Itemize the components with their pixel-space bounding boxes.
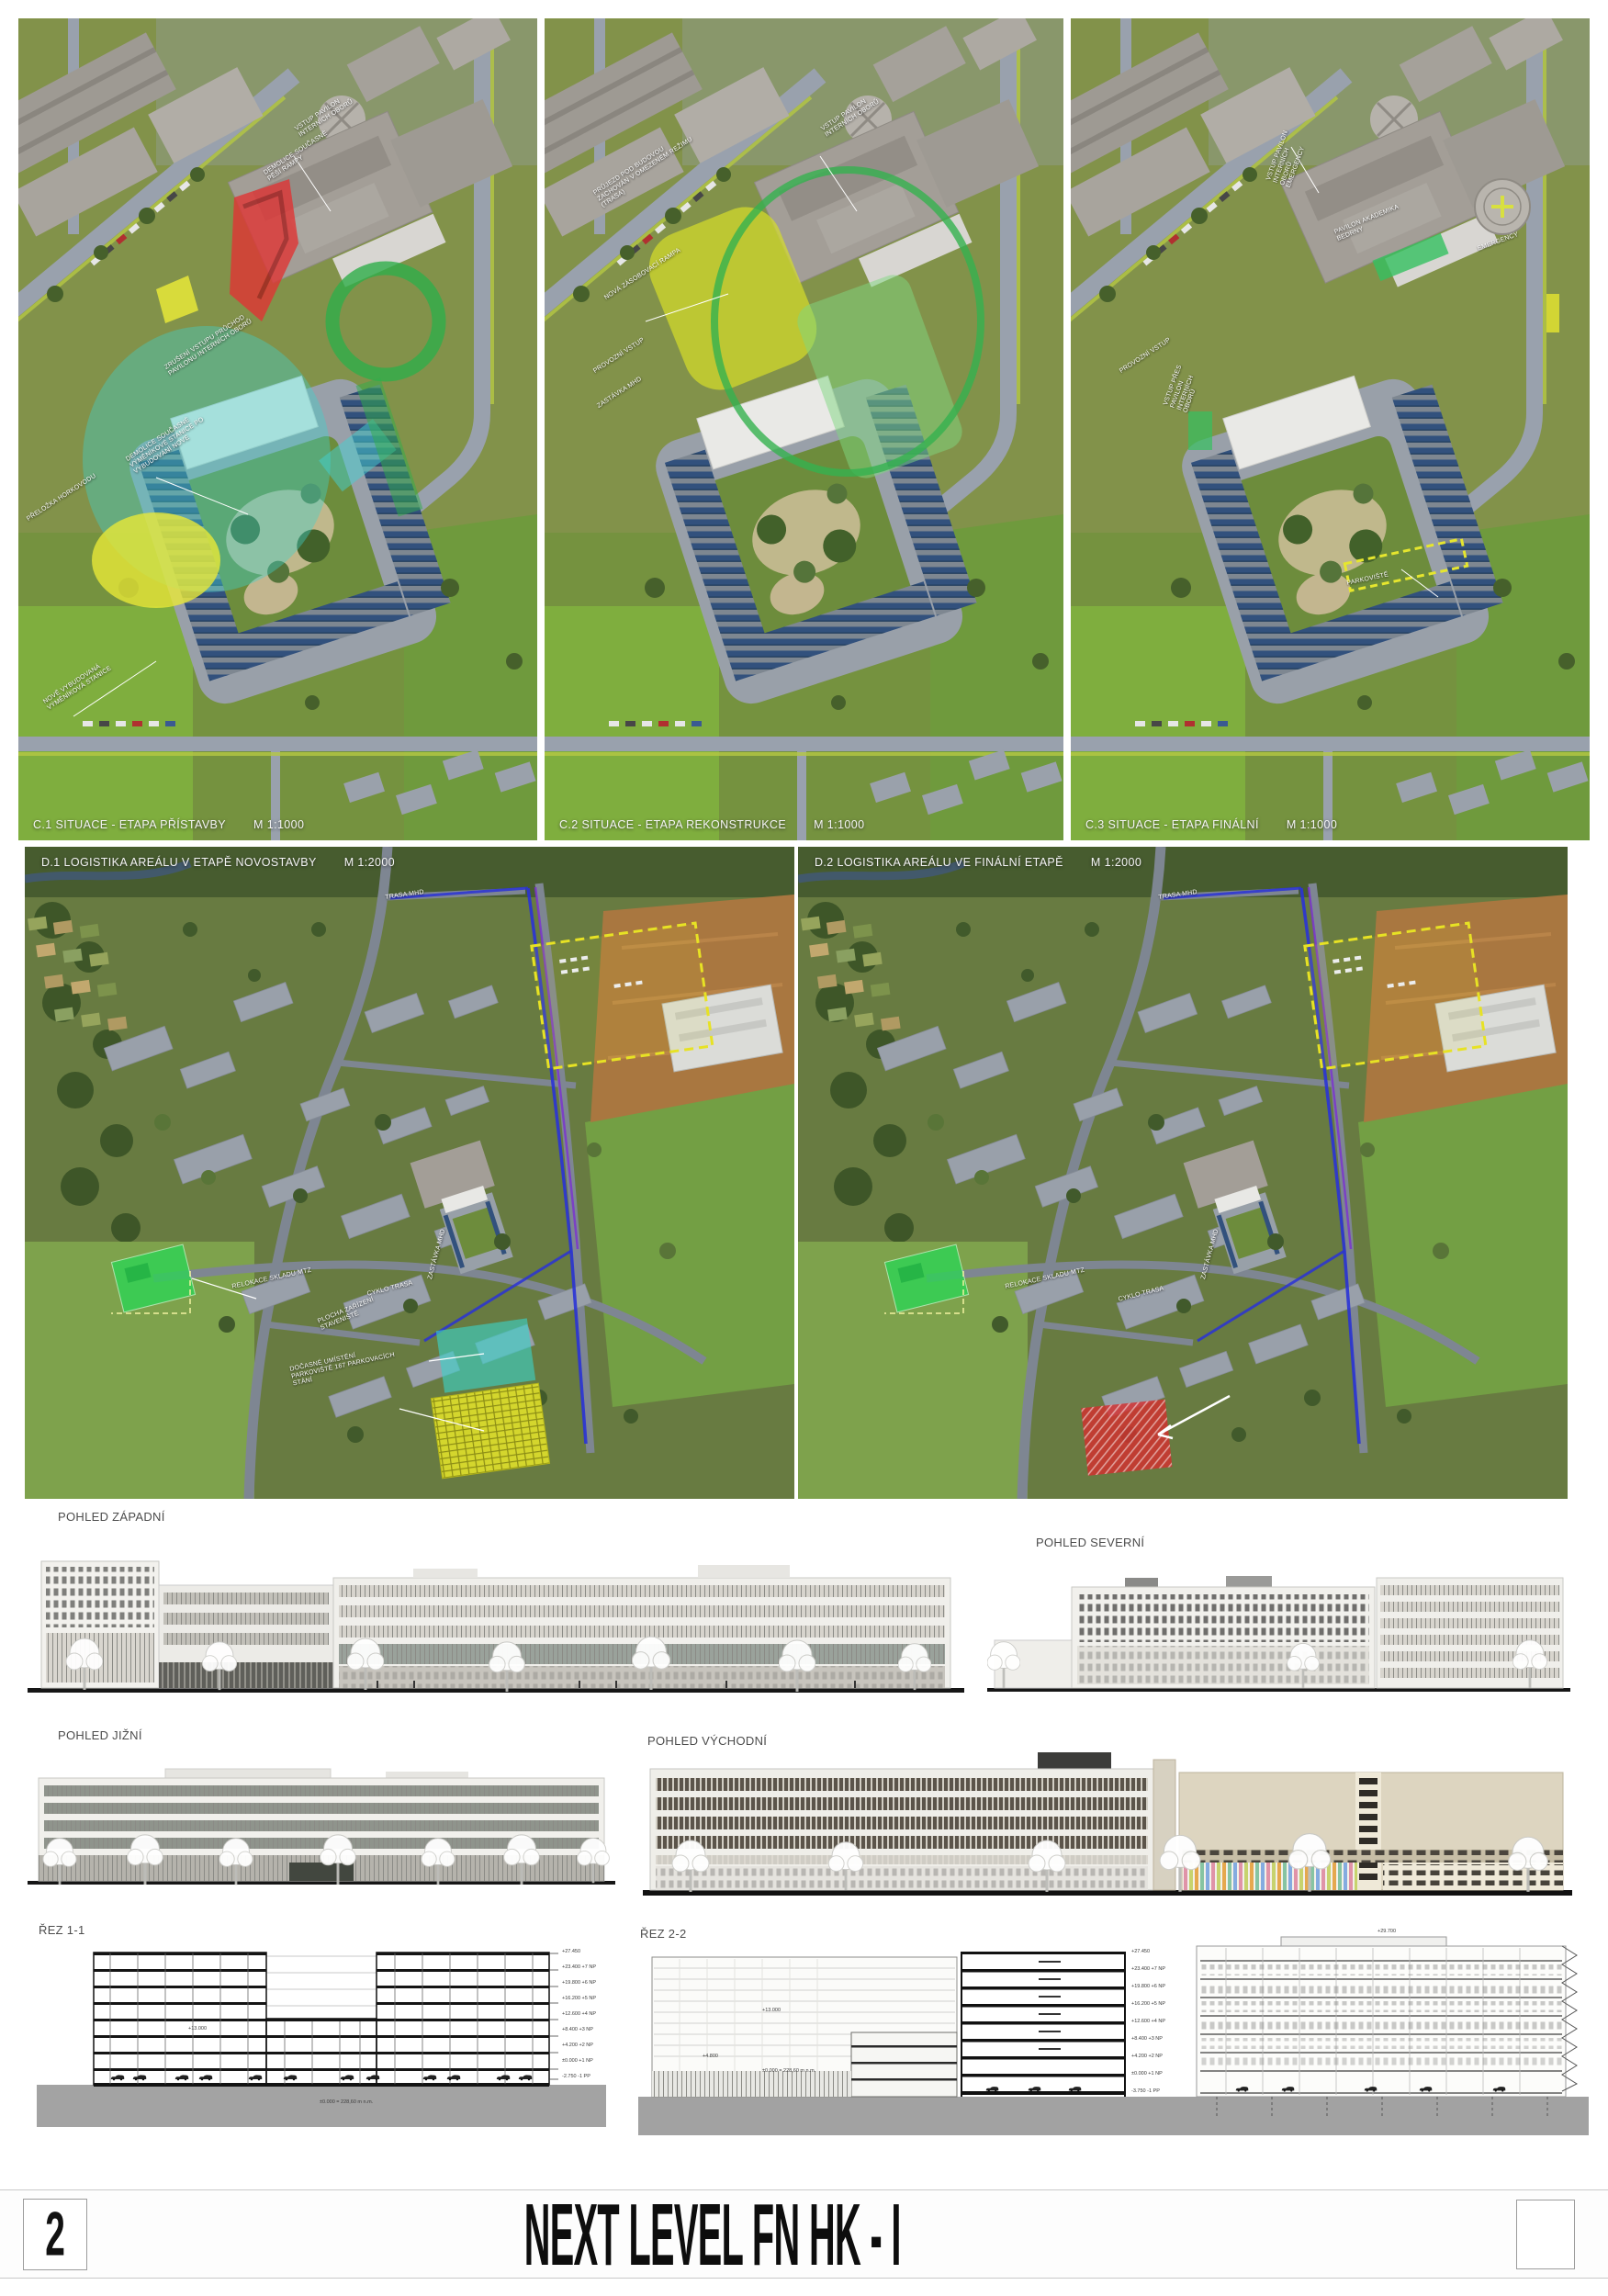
level-label: ±0.000 +1 NP: [562, 2058, 596, 2074]
caption-text: D.2 LOGISTIKA AREÁLU VE FINÁLNÍ ETAPĚ: [815, 856, 1063, 869]
level-label: +16.200 +5 NP: [1131, 2001, 1165, 2019]
site-plan-c3: VSTUP PAVILON INTERNÍCH OBORŮ EMERGENCY …: [1071, 18, 1590, 840]
elevation-south-drawing: [28, 1747, 615, 1896]
panel-caption: D.1 LOGISTIKA AREÁLU V ETAPĚ NOVOSTAVBYM…: [41, 856, 395, 869]
logistics-plan-d1: TRASA MHD ZASTÁVKA MHD RELOKACE SKLADU M…: [25, 847, 794, 1499]
level-label: +19.800 +6 NP: [1131, 1984, 1165, 2001]
level-label: +12.600 +4 NP: [1131, 2019, 1165, 2036]
dim-label: +4.800: [703, 2054, 718, 2059]
level-label: +8.400 +3 NP: [1131, 2036, 1165, 2054]
stamp-box: [1516, 2200, 1575, 2269]
level-label: +12.600 +4 NP: [562, 2011, 596, 2027]
level-label: +4.200 +2 NP: [1131, 2054, 1165, 2071]
panel-caption: C.1 SITUACE - ETAPA PŘÍSTAVBYM 1:1000: [33, 818, 304, 831]
dim-label: +13.000: [762, 2008, 781, 2013]
elevation-label-east: POHLED VÝCHODNÍ: [647, 1734, 767, 1748]
datum-label: ±0.000 = 228,60 m n.m.: [762, 2068, 815, 2074]
caption-text: D.1 LOGISTIKA AREÁLU V ETAPĚ NOVOSTAVBY: [41, 856, 317, 869]
elevation-east-drawing: [643, 1747, 1572, 1901]
level-label: +27.450: [562, 1949, 596, 1964]
caption-scale: M 1:2000: [344, 856, 395, 869]
title-wrap: NEXT LEVEL FN HK - I: [0, 2190, 1608, 2278]
caption-scale: M 1:1000: [253, 818, 304, 831]
aerial-render-d1: [25, 847, 794, 1499]
level-label: +8.400 +3 NP: [562, 2027, 596, 2043]
caption-text: C.3 SITUACE - ETAPA FINÁLNÍ: [1085, 818, 1259, 831]
aerial-render-c1: [18, 18, 537, 840]
panel-caption: D.2 LOGISTIKA AREÁLU VE FINÁLNÍ ETAPĚM 1…: [815, 856, 1141, 869]
caption-scale: M 1:2000: [1091, 856, 1141, 869]
level-label: -3.750 -1 PP: [1131, 2088, 1165, 2106]
site-plan-c2: VSTUP PAVILON INTERNÍCH OBORŮ PRŮJEZD PO…: [545, 18, 1063, 840]
panel-caption: C.3 SITUACE - ETAPA FINÁLNÍM 1:1000: [1085, 818, 1337, 831]
level-label: ±0.000 +1 NP: [1131, 2071, 1165, 2088]
level-label: +16.200 +5 NP: [562, 1996, 596, 2011]
title-block: 2 NEXT LEVEL FN HK - I: [0, 2189, 1608, 2279]
elevation-north-drawing: [987, 1554, 1570, 1704]
project-title: NEXT LEVEL FN HK - I: [523, 2183, 900, 2285]
level-label: +23.400 +7 NP: [1131, 1966, 1165, 1984]
level-label: +19.800 +6 NP: [562, 1980, 596, 1996]
caption-text: C.2 SITUACE - ETAPA REKONSTRUKCE: [559, 818, 786, 831]
aerial-render-c3: [1071, 18, 1590, 840]
level-label: +23.400 +7 NP: [562, 1964, 596, 1980]
elevation-label-south: POHLED JIŽNÍ: [58, 1728, 142, 1742]
section-1-levels: +27.450 +23.400 +7 NP +19.800 +6 NP +16.…: [562, 1949, 596, 2089]
dim-label: +29.700: [1377, 1929, 1396, 1934]
level-label: -2.750 -1 PP: [562, 2074, 596, 2089]
datum-label: ±0.000 = 228,60 m n.m.: [320, 2099, 373, 2105]
level-label: +4.200 +2 NP: [562, 2043, 596, 2058]
caption-text: C.1 SITUACE - ETAPA PŘÍSTAVBY: [33, 818, 226, 831]
section-label-1: ŘEZ 1-1: [39, 1923, 85, 1937]
level-label: +27.450: [1131, 1949, 1165, 1966]
section-2-drawing: [638, 1924, 1589, 2140]
aerial-render-d2: [798, 847, 1568, 1499]
site-plan-c1: VSTUP PAVILON INTERNÍCH OBORŮ DEMOLICE S…: [18, 18, 537, 840]
elevation-west-drawing: [28, 1526, 964, 1708]
aerial-render-c2: [545, 18, 1063, 840]
presentation-board: VSTUP PAVILON INTERNÍCH OBORŮ DEMOLICE S…: [0, 0, 1608, 2296]
section-2-levels: +27.450 +23.400 +7 NP +19.800 +6 NP +16.…: [1131, 1949, 1165, 2106]
caption-scale: M 1:1000: [814, 818, 864, 831]
logistics-plan-d2: TRASA MHD ZASTÁVKA MHD RELOKACE SKLADU M…: [798, 847, 1568, 1499]
elevation-label-west: POHLED ZÁPADNÍ: [58, 1510, 165, 1524]
panel-caption: C.2 SITUACE - ETAPA REKONSTRUKCEM 1:1000: [559, 818, 864, 831]
caption-scale: M 1:1000: [1287, 818, 1337, 831]
dim-label: +13.000: [188, 2026, 207, 2032]
elevation-label-north: POHLED SEVERNÍ: [1036, 1536, 1144, 1549]
